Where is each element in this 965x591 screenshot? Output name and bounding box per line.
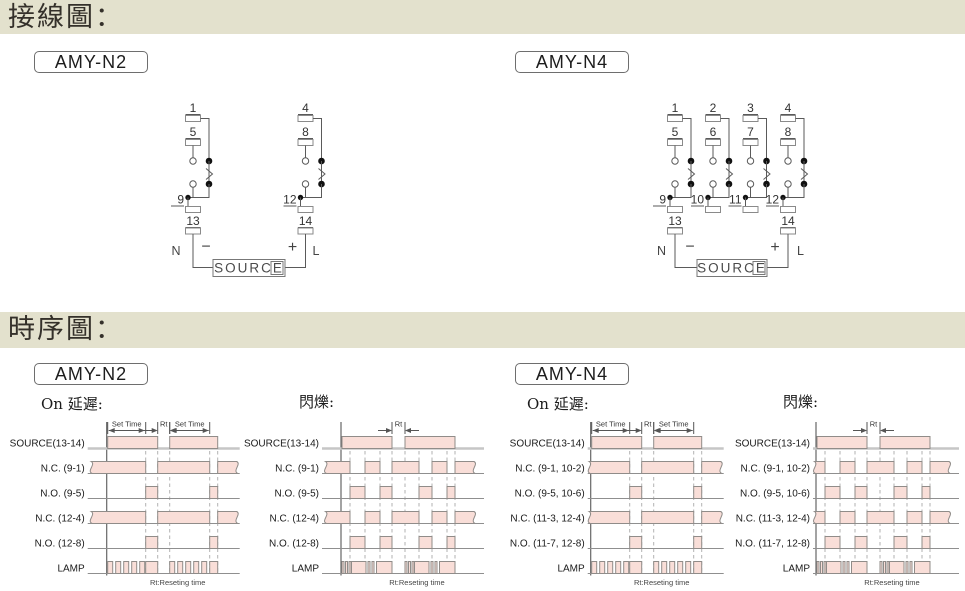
pulse [409, 562, 411, 574]
terminal-box-2 [706, 116, 721, 122]
annotation-label: Rt [644, 420, 652, 429]
terminal-number: 4 [785, 101, 792, 115]
waveform-row: N.C. (9-1, 10-2) [515, 462, 723, 475]
model-label-text: AMY-N4 [536, 52, 608, 72]
fixed-contact-circle [672, 181, 678, 187]
pulse [678, 562, 683, 574]
pulse [158, 512, 210, 524]
arrowhead-icon [152, 428, 158, 433]
terminal-number: 5 [672, 125, 679, 139]
pulse [380, 537, 392, 549]
pulse [415, 562, 430, 574]
pulse [170, 437, 218, 449]
pulse [350, 487, 365, 499]
annotation-Set Time: Set Time [592, 420, 630, 435]
row-label: N.O. (11-7, 12-8) [510, 539, 585, 550]
waveform-row: SOURCE(13-14) [735, 437, 959, 450]
row-label: N.C. (9-1) [41, 464, 85, 475]
pulse [821, 562, 823, 574]
row-label: N.O. (9-5, 10-6) [740, 489, 810, 500]
section-header-wiring: 接線圖： [0, 0, 965, 34]
pulse [431, 562, 433, 574]
pulse [702, 512, 723, 524]
timing-chart-2: SOURCE(13-14)N.C. (9-1, 10-2)N.O. (9-5, … [510, 420, 724, 588]
pulse [158, 462, 210, 474]
terminal-box-3 [743, 116, 758, 122]
pulse [592, 437, 642, 449]
pulse [642, 462, 694, 474]
annotation-label: Rt [395, 420, 403, 429]
waveform-row: SOURCE(13-14) [510, 437, 724, 450]
pulse [455, 512, 476, 524]
terminal-box-12 [298, 207, 313, 213]
annotation-label: Set Time [596, 420, 626, 429]
arrowhead-icon [636, 428, 642, 433]
pulse [867, 512, 894, 524]
relay-pole-1: 159 [653, 101, 695, 213]
waveform-row: N.O. (9-5) [40, 487, 239, 500]
terminal-box-1 [186, 116, 201, 122]
model-label-text: AMY-N4 [536, 364, 608, 384]
annotation-label: Set Time [175, 420, 205, 429]
power-label-line: L [313, 244, 320, 258]
row-label: SOURCE(13-14) [735, 439, 810, 450]
pulse [218, 462, 239, 474]
pulse [670, 562, 675, 574]
annotation-Set Time: Set Time [108, 420, 146, 435]
arrowhead-icon [593, 428, 599, 433]
pulse [930, 512, 951, 524]
pulse [377, 562, 393, 574]
terminal-box-8 [781, 140, 796, 146]
pulse [654, 562, 659, 574]
power-label-plus: + [288, 239, 297, 256]
source-label: SOURCE [214, 261, 284, 276]
pulse [817, 562, 819, 574]
pulse [352, 562, 367, 574]
pulse [906, 562, 908, 574]
pulse [146, 537, 158, 549]
waveform-row: N.C. (11-3, 12-4) [510, 512, 723, 525]
pulse [608, 562, 613, 574]
wire [201, 119, 210, 159]
waveform-row: N.C. (12-4) [270, 512, 484, 525]
terminal-box-9 [668, 207, 683, 213]
terminal-box-5 [186, 140, 201, 146]
pulse [894, 487, 907, 499]
wire [313, 119, 322, 159]
relay-pole-1: 159 [171, 101, 213, 213]
pulse [419, 537, 432, 549]
row-label: N.C. (12-4) [270, 514, 319, 525]
model-label-text: AMY-N2 [55, 52, 127, 72]
waveform-row: N.C. (11-3, 12-4) [736, 512, 959, 525]
power-label-minus: − [685, 239, 694, 256]
annotation-Rt: Rt [853, 420, 894, 435]
terminal-number: 9 [659, 193, 666, 207]
pulse [840, 512, 855, 524]
terminal-number: 6 [710, 125, 717, 139]
pulse [825, 487, 840, 499]
power-label-minus: − [201, 239, 210, 256]
pulse [630, 537, 642, 549]
pulse [108, 562, 113, 574]
relay-pole-3: 3711 [729, 101, 771, 213]
pulse [884, 562, 886, 574]
section-title-timing: 時序圖： [0, 312, 965, 347]
annotation-label: Set Time [112, 420, 142, 429]
wiring-diagram-n2: 15948121314SOURCEN−+L [171, 101, 325, 277]
fixed-contact-circle [302, 181, 308, 187]
wiring-diagram-n4: 1592610371148121314SOURCEN−+L [653, 101, 808, 277]
terminal-box-14 [298, 228, 313, 234]
row-label: N.O. (12-8) [269, 539, 319, 550]
pulse [146, 487, 158, 499]
pulse [365, 512, 380, 524]
fixed-contact-circle [747, 181, 753, 187]
terminal-box-13 [186, 228, 201, 234]
terminal-number: 5 [190, 125, 197, 139]
pulse [814, 512, 825, 524]
pulse [855, 487, 867, 499]
pulse [210, 562, 218, 574]
terminal-box-14 [781, 228, 796, 234]
terminal-number: 1 [672, 101, 679, 115]
pulse [817, 437, 867, 449]
pulse [840, 462, 855, 474]
arrowhead-icon [861, 428, 867, 433]
annotation-label: Rt [160, 420, 168, 429]
terminal-box-4 [781, 116, 796, 122]
terminal-box-8 [298, 140, 313, 146]
pulse [372, 562, 374, 574]
model-label-timing-n4: AMY-N4 [515, 363, 629, 385]
timing-chart-0: SOURCE(13-14)N.C. (9-1)N.O. (9-5)N.C. (1… [10, 420, 240, 588]
timing-chart-1: SOURCE(13-14)N.C. (9-1)N.O. (9-5)N.C. (1… [244, 420, 484, 588]
model-label-wiring-n4: AMY-N4 [515, 51, 629, 73]
waveform-row: LAMP [57, 562, 239, 575]
model-label-wiring-n2: AMY-N2 [34, 51, 148, 73]
fixed-contact-circle [747, 158, 753, 164]
pulse [186, 562, 191, 574]
waveform-row: N.C. (9-1, 10-2) [741, 462, 959, 475]
pulse [405, 562, 407, 574]
relay-pole-2: 4812 [283, 101, 325, 213]
row-label: LAMP [57, 564, 85, 575]
pulse [600, 562, 605, 574]
pulse [662, 562, 667, 574]
pulse [412, 562, 414, 574]
pulse [702, 462, 723, 474]
terminal-box-7 [743, 140, 758, 146]
waveform-row: N.C. (12-4) [35, 512, 239, 525]
row-label: N.O. (11-7, 12-8) [735, 539, 810, 550]
arrowhead-icon [171, 428, 177, 433]
relay-pole-4: 4812 [766, 101, 808, 213]
timing-chart-3: SOURCE(13-14)N.C. (9-1, 10-2)N.O. (9-5, … [735, 420, 959, 588]
terminal-number: 8 [785, 125, 792, 139]
terminal-number: 12 [283, 193, 297, 207]
pulse [432, 462, 447, 474]
power-label-neutral: N [657, 244, 666, 258]
waveform-row: N.O. (9-5, 10-6) [740, 487, 959, 500]
annotation-label: Set Time [659, 420, 689, 429]
pulse [890, 562, 905, 574]
terminal-number: 2 [710, 101, 717, 115]
pulse [342, 562, 344, 574]
row-label: SOURCE(13-14) [244, 439, 319, 450]
row-label: N.C. (12-4) [35, 514, 84, 525]
pulse [880, 437, 930, 449]
pulse [843, 562, 845, 574]
pulse [907, 462, 922, 474]
pulse [827, 562, 842, 574]
row-label: N.O. (9-5, 10-6) [515, 489, 585, 500]
terminal-number: 14 [299, 214, 313, 228]
fixed-contact-circle [710, 181, 716, 187]
pulse [630, 562, 642, 574]
arrowhead-icon [655, 428, 661, 433]
pulse [210, 487, 218, 499]
pulse [824, 562, 826, 574]
waveform-row: SOURCE(13-14) [10, 437, 240, 450]
pulse [825, 537, 840, 549]
terminal-number: 10 [691, 193, 705, 207]
chart-caption-n4-ondelay: On 延遲: [527, 393, 589, 414]
row-label: LAMP [783, 564, 811, 575]
section-header-timing: 時序圖： [0, 312, 965, 348]
pulse [124, 562, 129, 574]
model-label-timing-n2: AMY-N2 [34, 363, 148, 385]
pulse [852, 562, 868, 574]
arrowhead-icon [687, 428, 693, 433]
pulse [447, 487, 455, 499]
pulse [435, 562, 437, 574]
pulse [202, 562, 207, 574]
terminal-number: 12 [766, 193, 780, 207]
footnote: Rt:Reseting time [150, 578, 205, 587]
wire [796, 119, 805, 159]
row-label: LAMP [292, 564, 320, 575]
pulse [346, 562, 348, 574]
waveform-row: N.O. (9-5) [275, 487, 484, 500]
pulse [392, 512, 419, 524]
terminal-box-6 [706, 140, 721, 146]
pulse [90, 512, 145, 524]
row-label: N.O. (12-8) [35, 539, 85, 550]
terminal-box-5 [668, 140, 683, 146]
waveform-row: N.C. (9-1) [275, 462, 484, 475]
row-label: N.C. (11-3, 12-4) [736, 514, 810, 525]
pulse [814, 462, 825, 474]
row-label: N.C. (9-1, 10-2) [515, 464, 584, 475]
annotation-Rt: Rt [378, 420, 419, 435]
source-label: SOURCE [697, 261, 767, 276]
terminal-number: 7 [747, 125, 754, 139]
pulse [365, 462, 380, 474]
model-label-text: AMY-N2 [55, 364, 127, 384]
pulse [887, 562, 889, 574]
wire [758, 119, 767, 159]
row-label: N.C. (9-1) [275, 464, 319, 475]
pulse [880, 562, 882, 574]
arrowhead-icon [405, 428, 411, 433]
arrowhead-icon [880, 428, 886, 433]
pulse [915, 562, 931, 574]
pulse [116, 562, 121, 574]
fixed-contact-circle [785, 181, 791, 187]
relay-pole-2: 2610 [691, 101, 733, 213]
power-label-line: L [797, 244, 804, 258]
fixed-contact-circle [672, 158, 678, 164]
pulse [140, 562, 145, 574]
terminal-number: 3 [747, 101, 754, 115]
waveform-row: LAMP [292, 562, 484, 575]
pulse [694, 487, 702, 499]
row-label: SOURCE(13-14) [10, 439, 85, 450]
pulse [432, 512, 447, 524]
waveform-row: SOURCE(13-14) [244, 437, 484, 450]
terminal-box-4 [298, 116, 313, 122]
terminal-number: 8 [302, 125, 309, 139]
arrowhead-icon [109, 428, 115, 433]
wire [721, 119, 730, 159]
pulse [146, 562, 158, 574]
fixed-contact-circle [302, 158, 308, 164]
row-label: N.O. (9-5) [275, 489, 319, 500]
diagrams-canvas: 15948121314SOURCEN−+L1592610371148121314… [0, 0, 965, 591]
pulse [342, 437, 392, 449]
power-label-plus: + [770, 239, 779, 256]
pulse [170, 562, 175, 574]
fixed-contact-circle [710, 158, 716, 164]
pulse [624, 562, 629, 574]
terminal-box-11 [743, 207, 758, 213]
annotation-label: Rt [870, 420, 878, 429]
pulse [654, 437, 702, 449]
pulse [419, 487, 432, 499]
waveform-row: LAMP [783, 562, 959, 575]
pulse [686, 562, 691, 574]
pulse [392, 462, 419, 474]
waveform-row: N.O. (12-8) [35, 537, 240, 550]
pulse [694, 537, 702, 549]
pulse [108, 437, 158, 449]
annotation-Set Time: Set Time [654, 420, 694, 435]
row-label: SOURCE(13-14) [510, 439, 585, 450]
pulse [907, 512, 922, 524]
pulse [855, 537, 867, 549]
terminal-box-13 [668, 228, 683, 234]
terminal-number: 13 [668, 214, 682, 228]
pulse [616, 562, 621, 574]
power-label-neutral: N [171, 244, 180, 258]
terminal-number: 1 [190, 101, 197, 115]
pulse [922, 537, 930, 549]
pulse [867, 462, 894, 474]
pulse [132, 562, 137, 574]
annotation-Set Time: Set Time [170, 420, 210, 435]
arrowhead-icon [386, 428, 392, 433]
terminal-number: 13 [186, 214, 200, 228]
pulse [325, 462, 350, 474]
row-label: N.C. (9-1, 10-2) [741, 464, 810, 475]
pulse [847, 562, 849, 574]
pulse [694, 562, 702, 574]
datasheet-page: 15948121314SOURCEN−+L1592610371148121314… [0, 0, 965, 591]
waveform-row: N.O. (12-8) [269, 537, 484, 550]
pulse [194, 562, 199, 574]
pulse [368, 562, 370, 574]
chart-caption-n2-flicker: 閃爍: [299, 391, 334, 412]
terminal-box-9 [186, 207, 201, 213]
footnote: Rt:Reseting time [389, 578, 444, 587]
pulse [922, 487, 930, 499]
fixed-contact-circle [190, 158, 196, 164]
pulse [440, 562, 456, 574]
section-title-wiring: 接線圖： [0, 0, 965, 35]
waveform-row: N.O. (11-7, 12-8) [735, 537, 959, 550]
pulse [592, 562, 597, 574]
terminal-number: 9 [177, 193, 184, 207]
fixed-contact-circle [785, 158, 791, 164]
wire [683, 119, 692, 159]
pulse [380, 487, 392, 499]
pulse [455, 462, 476, 474]
row-label: LAMP [557, 564, 585, 575]
pulse [447, 537, 455, 549]
pulse [218, 512, 239, 524]
pulse [350, 537, 365, 549]
pulse [930, 462, 951, 474]
terminal-number: 4 [302, 101, 309, 115]
pulse [349, 562, 351, 574]
waveform-row: N.O. (9-5, 10-6) [515, 487, 724, 500]
footnote: Rt:Reseting time [864, 578, 919, 587]
pulse [325, 512, 350, 524]
terminal-box-1 [668, 116, 683, 122]
fixed-contact-circle [190, 181, 196, 187]
pulse [210, 537, 218, 549]
pulse [630, 487, 642, 499]
row-label: N.O. (9-5) [40, 489, 84, 500]
terminal-box-12 [781, 207, 796, 213]
pulse [894, 537, 907, 549]
terminal-box-10 [706, 207, 721, 213]
terminal-number: 11 [729, 193, 742, 207]
pulse [90, 462, 145, 474]
chart-caption-n2-ondelay: On 延遲: [41, 393, 103, 414]
pulse [588, 462, 629, 474]
waveform-row: LAMP [557, 562, 723, 575]
pulse [642, 512, 694, 524]
chart-caption-n4-flicker: 閃爍: [783, 391, 818, 412]
waveform-row: N.C. (9-1) [41, 462, 240, 475]
arrowhead-icon [203, 428, 209, 433]
pulse [588, 512, 629, 524]
pulse [178, 562, 183, 574]
waveform-row: N.O. (11-7, 12-8) [510, 537, 724, 550]
terminal-number: 14 [781, 214, 795, 228]
row-label: N.C. (11-3, 12-4) [510, 514, 584, 525]
pulse [910, 562, 912, 574]
pulse [405, 437, 455, 449]
footnote: Rt:Reseting time [634, 578, 689, 587]
